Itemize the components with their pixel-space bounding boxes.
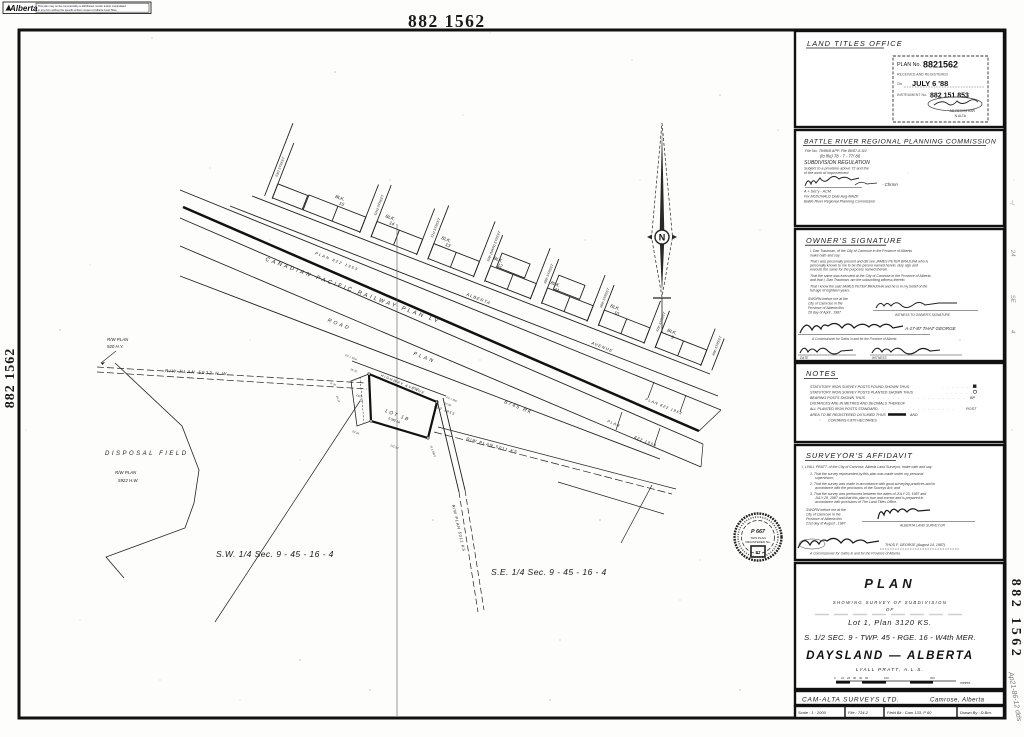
- svg-text:accordance with the provisions: accordance with the provisions of the Su…: [815, 486, 901, 490]
- svg-text:ALBERTA LAND SURVEYOR: ALBERTA LAND SURVEYOR: [899, 524, 945, 528]
- svg-text:. . . . . . . . . . . . . . .: . . . . . . . . . . . . . . . .: [878, 407, 955, 411]
- svg-text:200: 200: [929, 676, 935, 680]
- svg-text:accordance with provisions of: accordance with provisions of The Land T…: [815, 500, 897, 504]
- svg-text:THOS F. GEORGE (August 14, 19: THOS F. GEORGE (August 14, 1987): [885, 543, 945, 547]
- svg-text:100: 100: [884, 676, 889, 680]
- svg-text:OWNER'S SIGNATURE: OWNER'S SIGNATURE: [806, 236, 902, 245]
- svg-text:Province of Alberta this: Province of Alberta this: [806, 517, 842, 521]
- svg-text:I, Dan Trautman, of the City: I, Dan Trautman, of the City of Camrose …: [810, 249, 912, 253]
- svg-text:A Commissioner for Oaths in a: A Commissioner for Oaths in and for the …: [811, 337, 897, 341]
- svg-text:For McDONALD Date Aug-MA: For McDONALD Date Aug-MAZK: [804, 195, 859, 199]
- svg-text:Battle River Regional Planning: Battle River Regional Planning Commissio…: [804, 200, 875, 204]
- svg-text:RECEIVED AND REGISTERED: RECEIVED AND REGISTERED: [897, 73, 949, 77]
- svg-text:I, LYALL PRATT, of the City: I, LYALL PRATT, of the City of Camrose, …: [802, 465, 932, 469]
- svg-text:. . . . . .: . . . . . .: [946, 391, 973, 395]
- svg-text:AND: AND: [909, 413, 918, 417]
- svg-text:File No. 78/88/8 APP. F: File No. 78/88/8 APP. File 88/87-8-5/2: [805, 149, 867, 153]
- svg-text:SWORN before me at the: SWORN before me at the: [806, 508, 846, 512]
- svg-text:20: 20: [846, 676, 851, 680]
- svg-text:Province of Alberta this: Province of Alberta this: [808, 306, 844, 310]
- svg-text:REGISTERED No.: REGISTERED No.: [745, 540, 770, 544]
- svg-text:PLAN: PLAN: [864, 576, 915, 591]
- svg-text:AREA TO BE REGISTERED OUTL: AREA TO BE REGISTERED OUTLINED THUS: [809, 413, 886, 417]
- svg-text:POST: POST: [966, 407, 977, 411]
- svg-text:882 1562: 882 1562: [3, 348, 18, 409]
- svg-text:S.E. 1/4 Sec. 9 - 45 - 16 - 4: S.E. 1/4 Sec. 9 - 45 - 16 - 4: [491, 567, 607, 577]
- svg-text:S. 1/2 SEC. 9 - TWP. 45 - RGE: S. 1/2 SEC. 9 - TWP. 45 - RGE. 16 - W4th…: [804, 633, 976, 642]
- svg-text:CONTAINS 0.870 HECTARES: CONTAINS 0.870 HECTARES: [828, 419, 877, 423]
- svg-text:supervision;: supervision;: [815, 476, 834, 480]
- svg-text:A Commissioner for Oaths: A Commissioner for Oaths in and for the …: [809, 552, 900, 556]
- svg-text:STATUTORY IRON SURVEY POSTS: STATUTORY IRON SURVEY POSTS PLANTED SHOW…: [810, 391, 914, 395]
- svg-text:Alberta: Alberta: [9, 4, 38, 13]
- svg-text:A-17-87 THAT GEORGE: A-17-87 THAT GEORGE: [904, 326, 957, 331]
- svg-text:BEARING POSTS SHOWN THUS: BEARING POSTS SHOWN THUS: [810, 396, 866, 400]
- svg-text:(to file) 78 - 7 - 77/ 88: (to file) 78 - 7 - 77/ 88: [820, 154, 861, 159]
- svg-text:882 1562: 882 1562: [408, 11, 486, 31]
- svg-text:24: 24: [1009, 249, 1016, 258]
- svg-text:NOTES: NOTES: [806, 369, 836, 378]
- svg-text:BATTLE RIVER REGIONAL PLANN: BATTLE RIVER REGIONAL PLANNING COMMISSIO…: [804, 139, 996, 146]
- svg-text:Subject to a provision above 7: Subject to a provision above 72 and the: [804, 167, 869, 171]
- svg-text:DISTANCES ARE IN METRES AN: DISTANCES ARE IN METRES AND DECIMALS THE…: [810, 402, 906, 406]
- svg-text:Scale : 1 : 2000: Scale : 1 : 2000: [798, 710, 827, 715]
- svg-text:ALL PLANTED IRON POSTS STA: ALL PLANTED IRON POSTS STANDARD: [809, 407, 878, 411]
- svg-text:882 1562: 882 1562: [1008, 579, 1023, 660]
- svg-text:A + Sec'y - ACM: A + Sec'y - ACM: [803, 190, 832, 194]
- svg-text:87: 87: [755, 550, 761, 555]
- svg-text:Camrose, Alberta: Camrose, Alberta: [930, 698, 985, 704]
- svg-text:21st day of August , 1987: 21st day of August , 1987: [805, 522, 847, 526]
- svg-text:File : 734-2: File : 734-2: [848, 710, 869, 715]
- svg-text:10: 10: [841, 676, 845, 680]
- svg-text:and that I, Dan Trautman, am: and that I, Dan Trautman, am the subscri…: [810, 278, 905, 282]
- svg-text:Lot 1, Plan 3120 KS.: Lot 1, Plan 3120 KS.: [848, 618, 932, 627]
- svg-text:PLAN No.: PLAN No.: [897, 62, 921, 68]
- svg-text:in any form without the specif: in any form without the specific written…: [38, 8, 117, 12]
- svg-text:N.ALTA: N.ALTA: [955, 114, 967, 118]
- svg-text:DAYSLAND — ALBERTA: DAYSLAND — ALBERTA: [806, 649, 974, 662]
- svg-text:28 day of April , 1987: 28 day of April , 1987: [807, 311, 842, 315]
- svg-text:5922 H.W: 5922 H.W: [118, 478, 138, 483]
- svg-text:SURVEYOR'S AFFIDAVIT: SURVEYOR'S AFFIDAVIT: [806, 451, 913, 460]
- svg-text:CAM-ALTA SURVEYS LTD.: CAM-ALTA SURVEYS LTD.: [802, 697, 900, 704]
- svg-text:City of Camrose in the: City of Camrose in the: [806, 513, 841, 517]
- svg-text:of the work of improvement: of the work of improvement: [804, 171, 849, 175]
- svg-text:WITNESS TO OWNER'S SIGNATURE: WITNESS TO OWNER'S SIGNATURE: [895, 313, 951, 317]
- svg-text:Drawn By : D.Brn.: Drawn By : D.Brn.: [960, 710, 992, 715]
- svg-text:S.W. 1/4 Sec. 9 - 45 - 16 - 4: S.W. 1/4 Sec. 9 - 45 - 16 - 4: [216, 549, 334, 559]
- svg-text:R/W PLAN: R/W PLAN: [115, 470, 137, 475]
- svg-text:This plan may not be commercia: This plan may not be commercially re-dis…: [38, 4, 126, 8]
- svg-text:. . . . . . . . . . . . . . .: . . . . . . . . . . . . . . . . . . . .: [868, 396, 965, 400]
- svg-text:full age of eighteen years.: full age of eighteen years.: [810, 289, 850, 293]
- svg-text:JULY 6 '88: JULY 6 '88: [912, 79, 948, 88]
- svg-text:P 667: P 667: [751, 529, 766, 535]
- svg-text:metres: metres: [960, 681, 971, 685]
- svg-text:BP: BP: [970, 396, 976, 400]
- svg-text:AD REGISTRAR: AD REGISTRAR: [950, 109, 976, 113]
- svg-text:R/W PLAN: R/W PLAN: [107, 337, 129, 342]
- svg-text:Field Bk : Cam 133, P 60: Field Bk : Cam 133, P 60: [887, 710, 932, 715]
- svg-text:make oath and say:: make oath and say:: [810, 254, 841, 258]
- svg-text:30: 30: [853, 676, 857, 680]
- svg-text:City of Camrose in the: City of Camrose in the: [808, 302, 843, 306]
- svg-text:execute the same for the purpo: execute the same for the purposes named …: [810, 268, 888, 272]
- svg-text:WITNESS: WITNESS: [872, 356, 887, 360]
- svg-text:OF: OF: [886, 607, 895, 612]
- svg-text:STATUTORY IRON SURVEY POSTS: STATUTORY IRON SURVEY POSTS FOUND SHOWN …: [810, 385, 910, 389]
- svg-text:50: 50: [865, 676, 869, 680]
- svg-text:DATE: DATE: [800, 356, 809, 360]
- svg-text:920 H.Y.: 920 H.Y.: [107, 344, 124, 349]
- svg-text:N: N: [659, 233, 666, 243]
- svg-text:DISPOSAL FIELD: DISPOSAL FIELD: [105, 451, 189, 457]
- svg-text:40: 40: [859, 676, 863, 680]
- svg-text:SWORN before me at the: SWORN before me at the: [808, 297, 848, 301]
- svg-text:INSTRUMENT No.: INSTRUMENT No.: [897, 93, 927, 97]
- svg-text:SHOWING SURVEY OF SUBDIVISI: SHOWING SURVEY OF SUBDIVISION: [833, 600, 947, 605]
- svg-text:- Chrmn: - Chrmn: [882, 182, 898, 187]
- svg-text:SUBDIVISION REGULATION: SUBDIVISION REGULATION: [804, 160, 870, 166]
- svg-text:On: On: [897, 82, 902, 86]
- svg-text:LAND TITLES OFFICE: LAND TITLES OFFICE: [807, 39, 903, 48]
- svg-text:LYALL PRATT, A.L.S.: LYALL PRATT, A.L.S.: [856, 667, 924, 673]
- svg-text:8821562: 8821562: [923, 60, 958, 70]
- svg-text:882 151 853: 882 151 853: [930, 93, 969, 100]
